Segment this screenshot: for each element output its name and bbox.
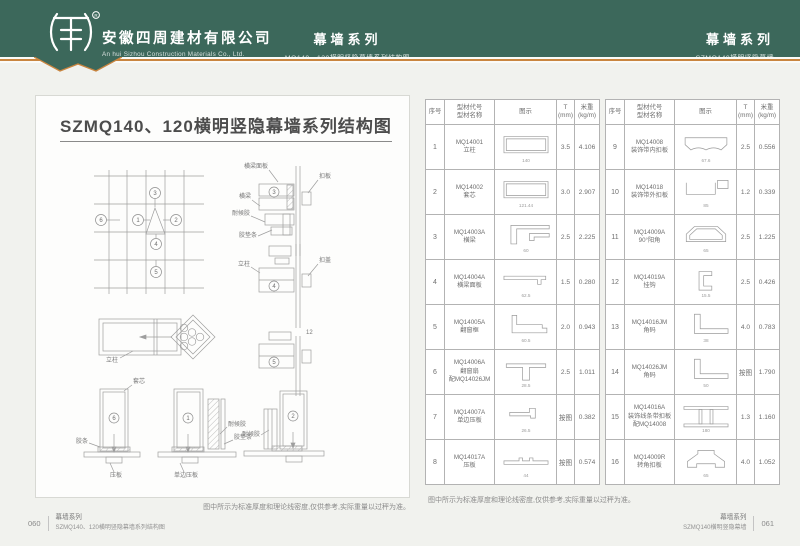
footer-right: 幕墙系列 SZMQ140横明竖隐幕墙 061 [683,513,774,533]
cell-weight: 0.339 [755,170,780,215]
left-page-note: 图中所示为标准厚度和理论线密度,仅供参考,实际重量以过秤为准。 [178,502,410,512]
cell-no: 16 [606,440,625,485]
bottom-detail-1: 1 单边压板 耐候胶 胶垫条 [158,389,252,479]
cell-weight: 1.011 [575,350,600,395]
table-row: 11MQ14009A90°阳角652.51.225 [606,215,780,260]
label-mullion: 立柱 [238,260,250,268]
cell-no: 9 [606,125,625,170]
table-row: 1MQ14001立柱1403.54.106 [426,125,600,170]
section-detail-5: 5 12 [259,330,313,396]
profile-dim-label: 65 [703,473,709,478]
series-title-right: 幕墙系列 [554,29,774,48]
opening-triangle [146,208,165,234]
cell-figure: 67.6 [675,125,737,170]
cell-weight: 0.574 [575,440,600,485]
cell-thickness: 1.5 [557,260,575,305]
table-row: 15MQ14016A装饰线条带扣板配MQ140081801.31.160 [606,395,780,440]
cell-no: 5 [426,305,445,350]
cell-weight: 2.907 [575,170,600,215]
cell-code-name: MQ14016A装饰线条带扣板配MQ14008 [625,395,675,440]
footer-divider [48,516,49,531]
label-mullion-plan: 立柱 [106,356,118,364]
profile-dim-label: 44 [523,473,529,478]
cell-figure: 60 [495,215,557,260]
table-row: 9MQ14008装饰带内扣板67.62.50.556 [606,125,780,170]
footer-doc-left: SZMQ140、120横明竖隐幕墙系列结构图 [56,524,165,534]
header-no: 序号 [426,100,445,125]
header-weight: 米重(kg/m) [575,100,600,125]
profile-dim-label: 85 [703,203,709,208]
section-detail-3: 3 横梁面板 扣板 横梁 耐候胶 胶垫条 [232,162,331,256]
profile-drawing-tube: 121.44 [497,175,555,209]
ribbon-tab [34,57,122,73]
cell-thickness: 4.0 [737,305,755,350]
cell-code-name: MQ14006A翻窗扇配MQ14026JM [445,350,495,395]
profile-table-right: 序号 型材代号型材名称 图示 T(mm) 米重(kg/m) 9MQ14008装饰… [605,99,780,485]
cell-thickness: 1.2 [737,170,755,215]
table-body-right: 9MQ14008装饰带内扣板67.62.50.55610MQ14018装饰带外扣… [606,125,780,485]
cell-weight: 1.790 [755,350,780,395]
grid-elevation: 3 1 2 6 4 5 [94,170,204,294]
profile-dim-label: 67.6 [701,158,710,163]
cell-weight: 4.106 [575,125,600,170]
cell-code-name: MQ14019A挂钩 [625,260,675,305]
cell-code-name: MQ14001立柱 [445,125,495,170]
cell-no: 4 [426,260,445,305]
cell-weight: 2.225 [575,215,600,260]
table-row: 16MQ14009R转角扣板654.01.052 [606,440,780,485]
profile-dim-label: 121.44 [518,203,533,208]
label-dim-12: 12 [306,330,313,336]
header-no: 序号 [606,100,625,125]
cell-figure: 180 [675,395,737,440]
cell-no: 1 [426,125,445,170]
cell-thickness: 1.3 [737,395,755,440]
cell-no: 14 [606,350,625,395]
structure-diagram: 3 1 2 6 4 5 3 横梁面板 扣板 横梁 耐候胶 胶垫条 [36,96,411,499]
profile-dim-label: 60.5 [521,338,530,343]
header-code: 型材代号型材名称 [445,100,495,125]
footer-divider [753,516,754,531]
footer-series-left: 幕墙系列 [56,513,165,524]
profile-dim-label: 50 [703,383,709,388]
page-title: SZMQ140、120横明竖隐幕墙系列结构图 [60,112,392,142]
cell-figure: 85 [675,170,737,215]
cell-weight: 1.225 [755,215,780,260]
label-beam: 横梁 [239,192,251,200]
bottom-detail-2: 2 耐候胶 [242,391,324,462]
cell-no: 3 [426,215,445,260]
profile-drawing-beam_t: 60 [497,220,555,254]
profile-drawing-angle: 50 [677,355,735,389]
cell-thickness: 2.5 [737,260,755,305]
table-row: 8MQ14017A压板44按图0.574 [426,440,600,485]
company-logo: R [44,8,104,54]
left-page-panel: SZMQ140、120横明竖隐幕墙系列结构图 3 1 2 6 4 5 [35,95,410,498]
cell-weight: 0.426 [755,260,780,305]
profile-drawing-clip: 26.5 [497,400,555,434]
table-row: 7MQ14007A单边压板26.5按图0.382 [426,395,600,440]
cell-weight: 0.280 [575,260,600,305]
footer-left: 060 幕墙系列 SZMQ140、120横明竖隐幕墙系列结构图 [28,513,165,533]
cell-weight: 0.943 [575,305,600,350]
profile-drawing-hex: 65 [677,220,735,254]
cell-no: 11 [606,215,625,260]
label-weather-seal-3: 耐候胶 [242,430,260,438]
cell-figure: 140 [495,125,557,170]
header-thickness: T(mm) [737,100,755,125]
header-thickness: T(mm) [557,100,575,125]
svg-text:R: R [94,13,98,18]
table-row: 3MQ14003A横梁602.52.225 [426,215,600,260]
section-detail-4: 4 立柱 扣盖 [238,244,331,328]
cell-code-name: MQ14004A横梁面板 [445,260,495,305]
cell-code-name: MQ14005A翻窗框 [445,305,495,350]
page-header: R 安徽四周建材有限公司 An hui Sizhou Construction … [0,0,800,57]
profile-dim-label: 28.5 [521,383,530,388]
cell-weight: 0.783 [755,305,780,350]
cell-figure: 62.5 [495,260,557,305]
profile-drawing-step: 60.5 [497,310,555,344]
cell-no: 8 [426,440,445,485]
label-core: 套芯 [133,377,145,385]
table-body-left: 1MQ14001立柱1403.54.1062MQ14002套芯121.443.0… [426,125,600,485]
cell-figure: 65 [675,215,737,260]
cell-no: 12 [606,260,625,305]
profile-drawing-arch: 67.6 [677,130,735,164]
cell-thickness: 2.5 [557,350,575,395]
cell-code-name: MQ14002套芯 [445,170,495,215]
cell-figure: 38 [675,305,737,350]
profile-drawing-tube: 140 [497,130,555,164]
profile-tables: 序号 型材代号型材名称 图示 T(mm) 米重(kg/m) 1MQ14001立柱… [425,99,779,485]
cell-weight: 1.160 [755,395,780,440]
header-figure: 图示 [495,100,557,125]
cell-thickness: 2.5 [557,215,575,260]
profile-drawing-angle: 38 [677,310,735,344]
cell-code-name: MQ14026JM角码 [625,350,675,395]
mullion-plan-section: 立柱 [99,315,215,364]
cell-thickness: 按图 [557,395,575,440]
cell-no: 2 [426,170,445,215]
cell-code-name: MQ14009A90°阳角 [625,215,675,260]
cell-thickness: 2.5 [737,215,755,260]
cell-no: 15 [606,395,625,440]
profile-drawing-trap: 65 [677,445,735,479]
footer-doc-right: SZMQ140横明竖隐幕墙 [683,524,746,534]
profile-drawing-tee_down: 28.5 [497,355,555,389]
bottom-detail-6: 6 套芯 胶条 压板 [76,377,145,479]
table-row: 5MQ14005A翻窗框60.52.00.943 [426,305,600,350]
profile-dim-label: 15.5 [701,293,710,298]
cell-no: 6 [426,350,445,395]
cell-code-name: MQ14017A压板 [445,440,495,485]
cell-figure: 65 [675,440,737,485]
profile-drawing-flat: 62.5 [497,265,555,299]
series-title-center: 幕墙系列 [240,29,455,48]
profile-drawing-h_frame: 180 [677,400,735,434]
cell-no: 13 [606,305,625,350]
cell-figure: 15.5 [675,260,737,305]
table-row: 14MQ14026JM角码50按图1.790 [606,350,780,395]
cell-code-name: MQ14007A单边压板 [445,395,495,440]
table-row: 6MQ14006A翻窗扇配MQ14026JM28.52.51.011 [426,350,600,395]
table-row: 4MQ14004A横梁面板62.51.50.280 [426,260,600,305]
cell-weight: 0.382 [575,395,600,440]
profile-dim-label: 65 [703,248,709,253]
page-number-right: 061 [761,519,774,528]
cell-figure: 60.5 [495,305,557,350]
table-header-row: 序号 型材代号型材名称 图示 T(mm) 米重(kg/m) [606,100,780,125]
cell-weight: 1.052 [755,440,780,485]
footer-series-right: 幕墙系列 [683,513,746,524]
cell-thickness: 按图 [737,350,755,395]
profile-dim-label: 26.5 [521,428,530,433]
cell-code-name: MQ14009R转角扣板 [625,440,675,485]
profile-drawing-c_small: 15.5 [677,265,735,299]
profile-dim-label: 62.5 [521,293,530,298]
label-press-plate: 压板 [110,471,122,479]
cell-no: 7 [426,395,445,440]
label-kougai: 扣盖 [319,256,331,264]
label-weather-seal-2: 耐候胶 [228,420,246,428]
cell-figure: 121.44 [495,170,557,215]
label-weather-seal: 耐候胶 [232,209,250,217]
cell-figure: 28.5 [495,350,557,395]
cell-thickness: 3.0 [557,170,575,215]
table-row: 13MQ14016JM角码384.00.783 [606,305,780,350]
cell-figure: 44 [495,440,557,485]
table-row: 2MQ14002套芯121.443.02.907 [426,170,600,215]
header-weight: 米重(kg/m) [755,100,780,125]
cell-code-name: MQ14016JM角码 [625,305,675,350]
cell-figure: 26.5 [495,395,557,440]
table-row: 12MQ14019A挂钩15.52.50.426 [606,260,780,305]
cell-code-name: MQ14003A横梁 [445,215,495,260]
cell-thickness: 按图 [557,440,575,485]
cell-thickness: 4.0 [737,440,755,485]
profile-dim-label: 180 [702,428,710,433]
label-kouban: 扣板 [319,172,331,180]
profile-drawing-channel: 85 [677,175,735,209]
header-code: 型材代号型材名称 [625,100,675,125]
right-page-note: 图中所示为标准厚度和理论线密度,仅供参考,实际重量以过秤为准。 [428,495,635,505]
cell-thickness: 2.5 [737,125,755,170]
label-single-press-plate: 单边压板 [174,471,198,479]
cell-code-name: MQ14018装饰带外扣板 [625,170,675,215]
table-row: 10MQ14018装饰带外扣板851.20.339 [606,170,780,215]
cell-weight: 0.556 [755,125,780,170]
table-header-row: 序号 型材代号型材名称 图示 T(mm) 米重(kg/m) [426,100,600,125]
cell-thickness: 3.5 [557,125,575,170]
cell-figure: 50 [675,350,737,395]
label-rubber-strip: 胶条 [76,437,88,445]
profile-table-left: 序号 型材代号型材名称 图示 T(mm) 米重(kg/m) 1MQ14001立柱… [425,99,600,485]
label-beam-panel: 横梁面板 [244,162,268,170]
profile-dim-label: 60 [523,248,529,253]
profile-drawing-flat_clip: 44 [497,445,555,479]
label-gasket: 胶垫条 [239,231,257,239]
cell-no: 10 [606,170,625,215]
profile-dim-label: 140 [522,158,530,163]
cell-code-name: MQ14008装饰带内扣板 [625,125,675,170]
profile-dim-label: 38 [703,338,709,343]
header-figure: 图示 [675,100,737,125]
cell-thickness: 2.0 [557,305,575,350]
page-number-left: 060 [28,519,41,528]
